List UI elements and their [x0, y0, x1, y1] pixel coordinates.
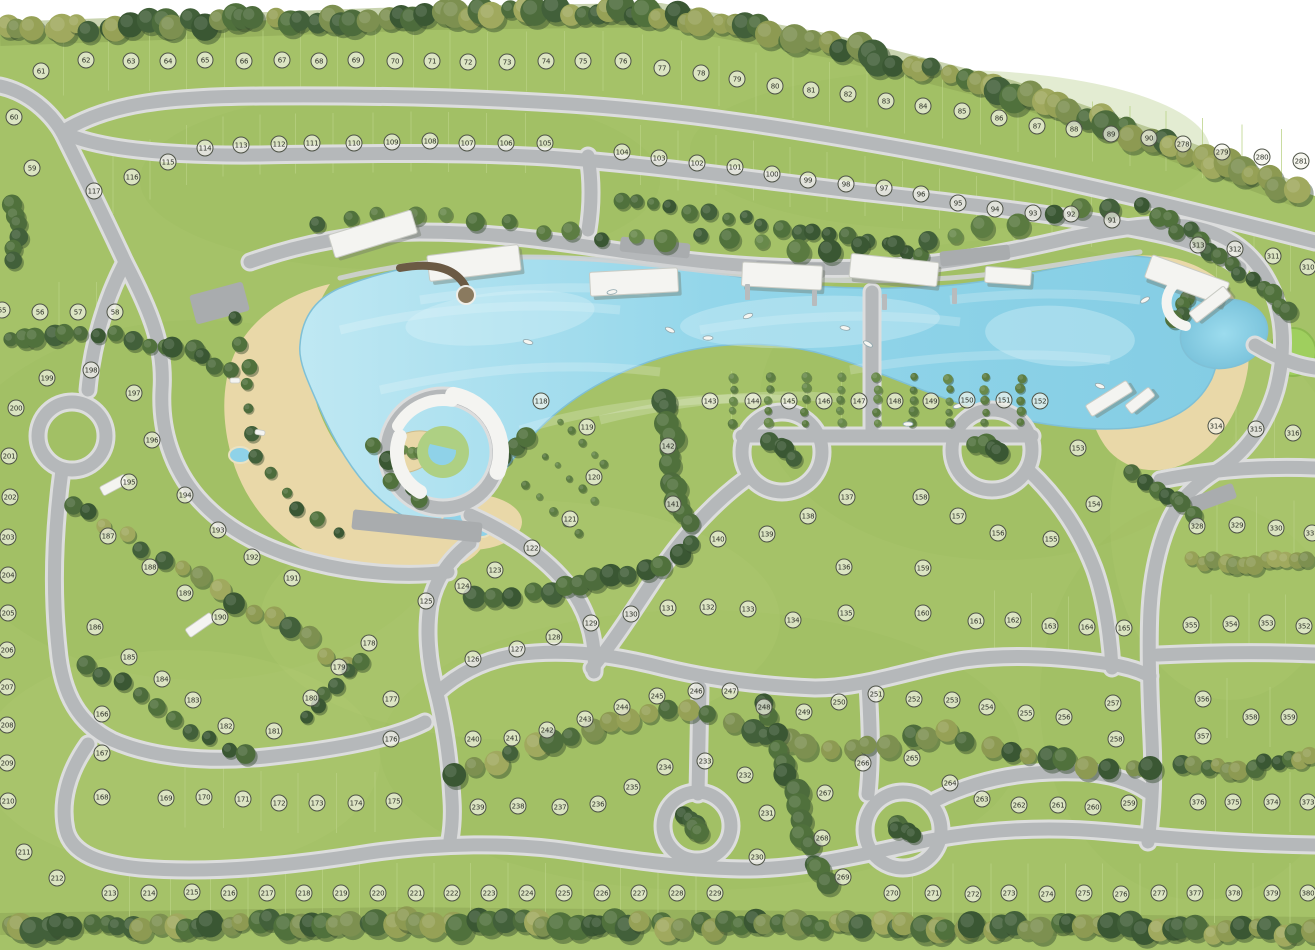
- lot-badge: 254: [979, 699, 996, 716]
- lot-badge: 120: [586, 469, 603, 486]
- lot-badge: 311: [1265, 248, 1282, 265]
- lot-badge: 278: [1175, 136, 1192, 153]
- lot-badge: 66: [236, 53, 253, 70]
- lot-badge: 132: [700, 599, 717, 616]
- lot-badge: 200: [8, 400, 25, 417]
- lot-badge: 220: [370, 885, 387, 902]
- lot-badge: 352: [1296, 618, 1313, 635]
- lot-badge: 244: [614, 699, 631, 716]
- lot-badge: 145: [781, 393, 798, 410]
- lot-badge: 228: [669, 885, 686, 902]
- lot-badge: 379: [1264, 885, 1281, 902]
- lot-badge: 75: [575, 53, 592, 70]
- lot-badge: 108: [422, 133, 439, 150]
- lot-badge: 101: [727, 159, 744, 176]
- lot-badge: 131: [660, 600, 677, 617]
- lot-badge: 179: [331, 659, 348, 676]
- lot-badge: 226: [594, 885, 611, 902]
- lot-badge: 354: [1223, 616, 1240, 633]
- lot-badge: 265: [904, 750, 921, 767]
- lot-badge: 64: [160, 53, 177, 70]
- lot-badge: 171: [235, 791, 252, 808]
- lot-badge: 201: [1, 448, 18, 465]
- lot-badge: 221: [408, 885, 425, 902]
- lot-badge: 158: [913, 489, 930, 506]
- lot-badge: 61: [33, 63, 50, 80]
- lot-badge: 271: [925, 885, 942, 902]
- lot-badge: 328: [1189, 518, 1206, 535]
- lot-badge: 156: [990, 525, 1007, 542]
- lot-badge: 113: [233, 137, 250, 154]
- lot-badge: 215: [184, 884, 201, 901]
- lot-badge: 117: [86, 183, 103, 200]
- lot-badge: 356: [1195, 691, 1212, 708]
- lot-badge: 231: [759, 805, 776, 822]
- lot-badge: 136: [836, 559, 853, 576]
- lot-badge: 90: [1141, 130, 1158, 147]
- lot-badge: 152: [1032, 393, 1049, 410]
- lot-badge: 181: [266, 723, 283, 740]
- lot-badge: 104: [614, 144, 631, 161]
- lot-badge: 225: [556, 885, 573, 902]
- lot-badge: 71: [424, 53, 441, 70]
- lot-badge: 245: [649, 688, 666, 705]
- lot-badge: 269: [835, 869, 852, 886]
- lot-badge: 169: [158, 790, 175, 807]
- lot-badge: 157: [950, 508, 967, 525]
- lot-badge: 59: [24, 160, 41, 177]
- lot-badge: 125: [418, 593, 435, 610]
- lot-badge: 173: [309, 795, 326, 812]
- lot-badge: 138: [800, 508, 817, 525]
- lot-badge: 143: [702, 393, 719, 410]
- lot-badge: 86: [991, 110, 1008, 127]
- lot-badge: 110: [346, 135, 363, 152]
- lot-badge: 202: [2, 489, 19, 506]
- lot-badge: 115: [160, 154, 177, 171]
- lot-badge: 276: [1113, 886, 1130, 903]
- lot-badge: 256: [1056, 709, 1073, 726]
- lot-badge: 119: [579, 419, 596, 436]
- lot-badge: 277: [1151, 885, 1168, 902]
- lot-badge: 253: [944, 692, 961, 709]
- lot-badge: 355: [1183, 617, 1200, 634]
- lot-badge: 252: [906, 691, 923, 708]
- lot-badge: 275: [1076, 885, 1093, 902]
- lot-badge: 242: [539, 722, 556, 739]
- lot-badge: 65: [197, 52, 214, 69]
- lot-badge: 116: [124, 169, 141, 186]
- lot-badge: 353: [1259, 615, 1276, 632]
- lot-badge: 232: [737, 767, 754, 784]
- lot-badge: 250: [831, 694, 848, 711]
- lot-badge: 96: [913, 186, 930, 203]
- lot-badge: 230: [749, 849, 766, 866]
- lot-badge: 378: [1226, 885, 1243, 902]
- lot-badge: 255: [1018, 705, 1035, 722]
- lot-badge: 210: [0, 793, 17, 810]
- lot-badge: 98: [838, 176, 855, 193]
- lot-badge: 233: [697, 753, 714, 770]
- lot-badge: 218: [296, 885, 313, 902]
- lot-badge: 164: [1079, 619, 1096, 636]
- lot-badge: 380: [1300, 885, 1315, 902]
- lot-badge: 123: [487, 562, 504, 579]
- lot-badge: 144: [745, 393, 762, 410]
- lot-badge: 183: [185, 692, 202, 709]
- lot-badge: 126: [465, 651, 482, 668]
- lot-badge: 213: [102, 885, 119, 902]
- lot-badge: 235: [624, 779, 641, 796]
- lot-badge: 73: [499, 54, 516, 71]
- lot-badge: 155: [1043, 531, 1060, 548]
- lot-badge: 191: [284, 570, 301, 587]
- lot-badge: 166: [94, 706, 111, 723]
- lot-badge: 266: [855, 755, 872, 772]
- lot-badge: 203: [0, 529, 17, 546]
- lot-badge: 375: [1225, 794, 1242, 811]
- lot-badge: 107: [459, 135, 476, 152]
- lot-badge: 139: [759, 526, 776, 543]
- residence-building: [589, 268, 681, 301]
- lot-badge: 176: [383, 731, 400, 748]
- lot-badge: 373: [1300, 794, 1315, 811]
- lot-badge: 82: [840, 86, 857, 103]
- lot-badge: 74: [538, 53, 555, 70]
- lot-badge: 194: [177, 487, 194, 504]
- lot-badge: 224: [519, 885, 536, 902]
- lot-badge: 246: [688, 683, 705, 700]
- lot-badge: 178: [361, 635, 378, 652]
- lot-badge: 260: [1085, 799, 1102, 816]
- lot-badge: 240: [465, 731, 482, 748]
- lot-badge: 374: [1264, 794, 1281, 811]
- lot-badge: 227: [631, 885, 648, 902]
- lot-badge: 100: [764, 166, 781, 183]
- lot-badge: 88: [1066, 121, 1083, 138]
- lot-badge: 135: [838, 605, 855, 622]
- lot-badge: 214: [141, 885, 158, 902]
- lot-badge: 85: [954, 103, 971, 120]
- lot-badge: 185: [121, 649, 138, 666]
- lot-badge: 137: [839, 489, 856, 506]
- lot-badge: 316: [1285, 425, 1302, 442]
- lot-badge: 184: [154, 671, 171, 688]
- lot-badge: 247: [722, 683, 739, 700]
- lot-badge: 192: [244, 549, 261, 566]
- lot-badge: 128: [546, 629, 563, 646]
- lot-badge: 279: [1214, 144, 1231, 161]
- lot-badge: 258: [1108, 731, 1125, 748]
- lot-badge: 190: [212, 609, 229, 626]
- lot-badge: 229: [707, 885, 724, 902]
- lot-badge: 239: [470, 799, 487, 816]
- lot-badge: 222: [444, 885, 461, 902]
- lot-badge: 133: [740, 601, 757, 618]
- lot-badge: 114: [197, 140, 214, 157]
- lot-badge: 134: [785, 612, 802, 629]
- lot-badge: 168: [94, 789, 111, 806]
- lot-badge: 262: [1011, 797, 1028, 814]
- lot-badge: 188: [142, 559, 159, 576]
- lot-badge: 263: [974, 791, 991, 808]
- lot-badge: 264: [942, 775, 959, 792]
- lot-badge: 236: [590, 796, 607, 813]
- lot-badge: 280: [1254, 149, 1271, 166]
- lot-badge: 91: [1104, 212, 1121, 229]
- lot-badge: 146: [816, 393, 833, 410]
- lot-badge: 216: [221, 885, 238, 902]
- lot-badge: 193: [210, 522, 227, 539]
- lot-badge: 198: [83, 362, 100, 379]
- lot-badge: 211: [16, 844, 33, 861]
- lot-badge: 80: [767, 78, 784, 95]
- lot-badge: 376: [1190, 794, 1207, 811]
- lot-badge: 205: [0, 605, 17, 622]
- lot-badge: 217: [259, 885, 276, 902]
- lot-badge: 314: [1208, 418, 1225, 435]
- lot-badge: 153: [1070, 440, 1087, 457]
- lot-badge: 81: [803, 82, 820, 99]
- lot-badge: 150: [959, 392, 976, 409]
- lot-badge: 103: [651, 150, 668, 167]
- residence-building: [984, 266, 1034, 289]
- lot-badge: 315: [1248, 421, 1265, 438]
- lot-badge: 165: [1116, 620, 1133, 637]
- lot-badge: 63: [123, 53, 140, 70]
- lot-badge: 180: [303, 690, 320, 707]
- lot-badge: 147: [851, 393, 868, 410]
- lot-badge: 124: [455, 578, 472, 595]
- lot-badge: 331: [1304, 525, 1315, 542]
- lot-badge: 359: [1281, 709, 1298, 726]
- lot-badge: 272: [965, 886, 982, 903]
- lot-badge: 159: [915, 560, 932, 577]
- lot-badge: 57: [70, 304, 87, 321]
- lot-badge: 151: [996, 392, 1013, 409]
- lot-badge: 160: [915, 605, 932, 622]
- lot-badge: 212: [49, 870, 66, 887]
- lot-badge: 162: [1005, 612, 1022, 629]
- lot-badge: 177: [383, 691, 400, 708]
- lot-badge: 148: [887, 393, 904, 410]
- lot-badge: 69: [348, 52, 365, 69]
- lot-badge: 223: [481, 885, 498, 902]
- lot-badge: 62: [78, 52, 95, 69]
- lot-badge: 186: [87, 619, 104, 636]
- lot-badge: 93: [1025, 205, 1042, 222]
- lot-badge: 274: [1039, 886, 1056, 903]
- master-plan-canvas: 5556575859606162636465666768697071727374…: [0, 0, 1315, 950]
- lot-badge: 175: [386, 793, 403, 810]
- lot-badge: 204: [0, 567, 17, 584]
- lot-badge: 219: [333, 885, 350, 902]
- lot-badge: 238: [510, 798, 527, 815]
- lot-badge: 112: [271, 136, 288, 153]
- lot-badge: 95: [950, 195, 967, 212]
- lot-badge: 170: [196, 789, 213, 806]
- lot-badge: 77: [654, 60, 671, 77]
- lot-badge: 196: [144, 432, 161, 449]
- lot-badge: 105: [537, 135, 554, 152]
- lot-badge: 122: [524, 540, 541, 557]
- lot-badge: 249: [796, 704, 813, 721]
- lot-badge: 84: [915, 98, 932, 115]
- lot-badge: 234: [657, 759, 674, 776]
- lot-badge: 257: [1105, 695, 1122, 712]
- lot-badge: 273: [1001, 885, 1018, 902]
- lot-badge: 97: [876, 180, 893, 197]
- lot-badge: 172: [271, 795, 288, 812]
- lot-badge: 141: [665, 496, 682, 513]
- lot-badge: 76: [615, 53, 632, 70]
- lot-badge: 154: [1086, 496, 1103, 513]
- lot-badge: 94: [987, 201, 1004, 218]
- lot-badge: 163: [1042, 618, 1059, 635]
- lot-badge: 313: [1190, 237, 1207, 254]
- lot-badge: 329: [1229, 517, 1246, 534]
- lot-badge: 56: [32, 304, 49, 321]
- lot-badge: 130: [623, 606, 640, 623]
- lot-badge: 267: [817, 785, 834, 802]
- lot-badge: 68: [311, 53, 328, 70]
- lot-badge: 140: [710, 531, 727, 548]
- lot-badge: 58: [107, 304, 124, 321]
- lot-badge: 149: [923, 393, 940, 410]
- lot-badge: 358: [1243, 709, 1260, 726]
- lot-badge: 187: [100, 528, 117, 545]
- lot-badge: 72: [460, 54, 477, 71]
- lot-badge: 60: [6, 109, 23, 126]
- lot-badge: 199: [39, 370, 56, 387]
- lot-badge: 241: [504, 730, 521, 747]
- lot-badge: 127: [509, 641, 526, 658]
- lot-badge: 268: [814, 830, 831, 847]
- lot-badge: 197: [126, 385, 143, 402]
- lot-badge: 261: [1050, 797, 1067, 814]
- lot-badge: 109: [384, 134, 401, 151]
- lot-badge: 270: [884, 885, 901, 902]
- lot-badge: 251: [868, 686, 885, 703]
- lot-badge: 195: [121, 474, 138, 491]
- lot-badge: 310: [1300, 259, 1315, 276]
- lot-badge: 161: [968, 613, 985, 630]
- lot-badge: 142: [660, 438, 677, 455]
- lot-badge: 83: [878, 93, 895, 110]
- lot-badge: 174: [348, 795, 365, 812]
- lot-badge: 89: [1103, 126, 1120, 143]
- lot-badge: 237: [552, 799, 569, 816]
- lot-badge: 102: [689, 155, 706, 172]
- residence-building: [741, 262, 825, 294]
- lot-badge: 330: [1268, 520, 1285, 537]
- lot-badge: 70: [387, 53, 404, 70]
- lot-badge: 79: [729, 71, 746, 88]
- lot-badge: 67: [274, 52, 291, 69]
- lot-badge: 78: [693, 65, 710, 82]
- lot-badge: 182: [218, 718, 235, 735]
- lot-badge: 99: [800, 172, 817, 189]
- lot-badge: 92: [1063, 206, 1080, 223]
- lot-badge: 377: [1187, 885, 1204, 902]
- lot-badge: 281: [1293, 153, 1310, 170]
- lot-badge: 167: [94, 745, 111, 762]
- lot-badge: 189: [177, 585, 194, 602]
- lot-badge: 357: [1195, 728, 1212, 745]
- lot-badge: 129: [583, 615, 600, 632]
- lot-badge: 118: [533, 393, 550, 410]
- lot-badge: 87: [1029, 118, 1046, 135]
- lot-badge: 259: [1121, 795, 1138, 812]
- lot-badge: 248: [756, 699, 773, 716]
- lot-badge: 121: [562, 511, 579, 528]
- lot-badge: 243: [577, 711, 594, 728]
- lot-badge: 312: [1227, 241, 1244, 258]
- lot-badge: 106: [498, 135, 515, 152]
- lot-badge: 111: [304, 135, 321, 152]
